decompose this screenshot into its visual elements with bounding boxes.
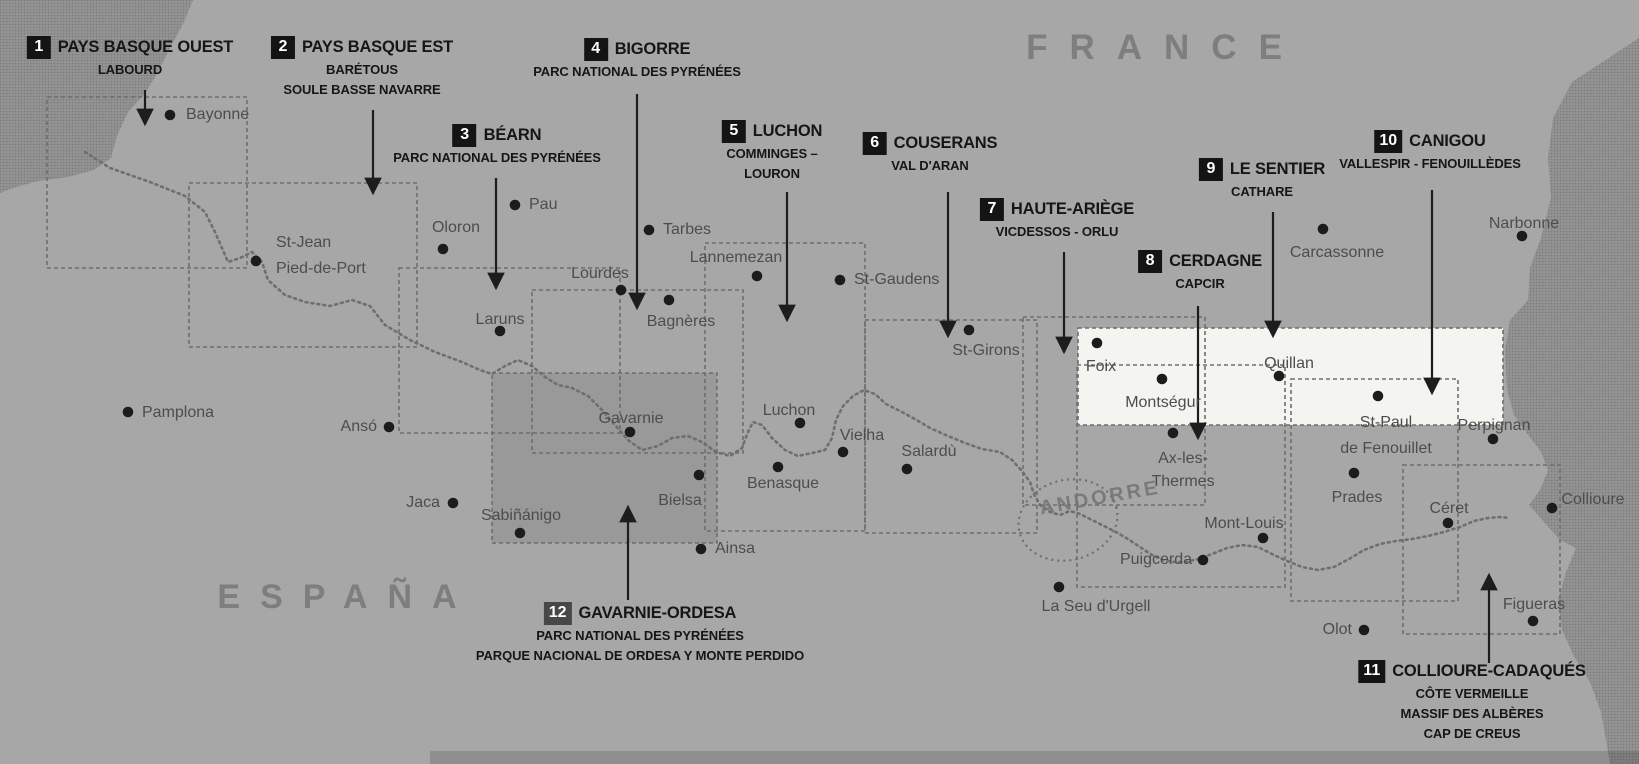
city-dot-jaca <box>448 498 459 509</box>
region-label-11: 11COLLIOURE-CADAQUÉSCÔTE VERMEILLEMASSIF… <box>1358 660 1585 743</box>
city-label-line: de Fenouillet <box>1340 436 1432 462</box>
city-label-line: Sabiñánigo <box>481 505 561 527</box>
city-label-c-ret: Céret <box>1429 498 1468 520</box>
city-label-pamplona: Pamplona <box>142 402 214 424</box>
city-label-line: Vielha <box>840 425 884 447</box>
city-label-line: La Seu d'Urgell <box>1042 596 1151 618</box>
city-dot-pamplona <box>123 407 134 418</box>
region-number-badge: 12 <box>544 602 572 625</box>
city-dot-st-gaudens <box>835 275 846 286</box>
city-dot-foix <box>1092 338 1103 349</box>
city-label-pau: Pau <box>529 194 557 216</box>
city-label-line: Gavarnie <box>599 408 664 430</box>
city-dot-salard- <box>902 464 913 475</box>
city-label-line: Perpignan <box>1458 415 1531 437</box>
city-dot-ainsa <box>696 544 707 555</box>
city-label-la-seu-d-urgell: La Seu d'Urgell <box>1042 596 1151 618</box>
city-label-puigcerda: Puigcerda <box>1120 549 1192 571</box>
region-label-12: 12GAVARNIE-ORDESAPARC NATIONAL DES PYRÉN… <box>476 602 804 665</box>
region-title: PAYS BASQUE OUEST <box>58 38 233 57</box>
city-label-line: Quillan <box>1264 353 1314 375</box>
region-number-badge: 6 <box>863 132 887 155</box>
region-subtitle: SOULE BASSE NAVARRE <box>271 81 453 99</box>
city-label-ax-les-thermes: Ax-les-Thermes <box>1151 447 1214 493</box>
city-label-line: St-Gaudens <box>854 269 939 291</box>
city-label-line: Prades <box>1332 487 1383 509</box>
city-dot-collioure <box>1547 503 1558 514</box>
city-dot-bielsa <box>694 470 705 481</box>
city-dot-prades <box>1349 468 1360 479</box>
city-dot-puigcerda <box>1198 555 1209 566</box>
city-label-line: Ansó <box>341 416 377 438</box>
region-subtitle: VALLESPIR - FENOUILLÈDES <box>1339 155 1521 173</box>
city-label-olot: Olot <box>1323 619 1352 641</box>
city-label-line: Bagnères <box>647 311 716 333</box>
city-label-tarbes: Tarbes <box>663 219 711 241</box>
city-label-line: Ax-les- <box>1151 447 1214 470</box>
city-label-carcassonne: Carcassonne <box>1290 242 1384 264</box>
city-label-st-jean-pied-de-port: St-JeanPied-de-Port <box>276 230 366 282</box>
city-label-line: Salardù <box>901 441 956 463</box>
city-label-line: Tarbes <box>663 219 711 241</box>
region-number-badge: 10 <box>1374 130 1402 153</box>
city-label-line: Pau <box>529 194 557 216</box>
bottom-edge-shadow <box>430 751 1639 764</box>
region-title: COUSERANS <box>894 134 998 153</box>
city-dot-pau <box>510 200 521 211</box>
city-dot-benasque <box>773 462 784 473</box>
region-label-2: 2PAYS BASQUE ESTBARÉTOUSSOULE BASSE NAVA… <box>271 36 453 99</box>
region-title: CERDAGNE <box>1169 252 1262 271</box>
city-label-figueras: Figueras <box>1503 594 1565 616</box>
city-label-line: Oloron <box>432 217 480 239</box>
region-label-1: 1PAYS BASQUE OUESTLABOURD <box>27 36 233 79</box>
region-subtitle: PARQUE NACIONAL DE ORDESA Y MONTE PERDID… <box>476 647 804 665</box>
city-label-line: Bayonne <box>186 104 249 126</box>
region-label-3: 3BÉARNPARC NATIONAL DES PYRÉNÉES <box>393 124 601 167</box>
city-label-jaca: Jaca <box>406 492 440 514</box>
city-label-line: Lannemezan <box>690 247 783 269</box>
city-label-line: Foix <box>1086 356 1116 378</box>
city-dot-st-paul-de-fenouillet <box>1373 391 1384 402</box>
region-subtitle: PARC NATIONAL DES PYRÉNÉES <box>476 627 804 645</box>
city-label-ans-: Ansó <box>341 416 377 438</box>
region-title: HAUTE-ARIÈGE <box>1011 200 1134 219</box>
city-label-line: Jaca <box>406 492 440 514</box>
city-label-line: Laruns <box>476 309 525 331</box>
city-label-line: St-Jean <box>276 230 366 256</box>
region-title: COLLIOURE-CADAQUÉS <box>1392 662 1585 681</box>
region-subtitle: LABOURD <box>27 61 233 79</box>
city-label-perpignan: Perpignan <box>1458 415 1531 437</box>
city-label-sabi-nigo: Sabiñánigo <box>481 505 561 527</box>
region-subtitle: VICDESSOS - ORLU <box>980 223 1134 241</box>
city-dot-monts-gur <box>1157 374 1168 385</box>
region-title: BÉARN <box>484 126 542 145</box>
region-subtitle: MASSIF DES ALBÈRES <box>1358 705 1585 723</box>
region-subtitle: BARÉTOUS <box>271 61 453 79</box>
city-label-luchon: Luchon <box>763 400 816 422</box>
city-label-st-girons: St-Girons <box>952 340 1020 362</box>
region-number-badge: 11 <box>1358 660 1385 683</box>
city-label-bayonne: Bayonne <box>186 104 249 126</box>
region-title: PAYS BASQUE EST <box>302 38 453 57</box>
region-title: LUCHON <box>753 122 822 141</box>
city-label-line: Bielsa <box>658 490 702 512</box>
city-dot-oloron <box>438 244 449 255</box>
city-dot-vielha <box>838 447 849 458</box>
city-label-collioure: Collioure <box>1561 489 1624 511</box>
city-label-oloron: Oloron <box>432 217 480 239</box>
region-number-badge: 1 <box>27 36 51 59</box>
city-dot-tarbes <box>644 225 655 236</box>
pyrenees-map-index: FRANCE ESPAÑA ANDORRE 1PAYS BASQUE OUEST… <box>0 0 1639 764</box>
region-label-10: 10CANIGOUVALLESPIR - FENOUILLÈDES <box>1339 130 1521 173</box>
city-dot-ans- <box>384 422 395 433</box>
city-dot-la-seu-d-urgell <box>1054 582 1065 593</box>
city-dot-st-girons <box>964 325 975 336</box>
city-label-line: Ainsa <box>715 538 755 560</box>
region-label-9: 9LE SENTIERCATHARE <box>1199 158 1325 201</box>
city-label-line: Lourdes <box>571 263 629 285</box>
city-dot-bagn-res <box>664 295 675 306</box>
city-label-line: St-Girons <box>952 340 1020 362</box>
region-title: CANIGOU <box>1409 132 1486 151</box>
city-label-st-paul-de-fenouillet: St-Paulde Fenouillet <box>1340 410 1432 462</box>
city-dot-bayonne <box>165 110 176 121</box>
city-label-line: Puigcerda <box>1120 549 1192 571</box>
city-label-ainsa: Ainsa <box>715 538 755 560</box>
sea-shape <box>1505 38 1639 764</box>
region-subtitle: PARC NATIONAL DES PYRÉNÉES <box>533 63 741 81</box>
city-label-line: Montségur <box>1125 392 1201 414</box>
city-label-line: Figueras <box>1503 594 1565 616</box>
region-label-7: 7HAUTE-ARIÈGEVICDESSOS - ORLU <box>980 198 1134 241</box>
region-number-badge: 7 <box>980 198 1004 221</box>
city-label-bielsa: Bielsa <box>658 490 702 512</box>
city-label-st-gaudens: St-Gaudens <box>854 269 939 291</box>
city-label-line: Pied-de-Port <box>276 256 366 282</box>
region-title: LE SENTIER <box>1230 160 1325 179</box>
city-label-benasque: Benasque <box>747 473 819 495</box>
city-label-bagn-res: Bagnères <box>647 311 716 333</box>
region-title: BIGORRE <box>615 40 691 59</box>
city-label-salard-: Salardù <box>901 441 956 463</box>
city-label-monts-gur: Montségur <box>1125 392 1201 414</box>
city-label-line: Céret <box>1429 498 1468 520</box>
city-label-prades: Prades <box>1332 487 1383 509</box>
city-label-lannemezan: Lannemezan <box>690 247 783 269</box>
region-subtitle: CATHARE <box>1199 183 1325 201</box>
city-dot-st-jean-pied-de-port <box>251 256 262 267</box>
region-subtitle: CÔTE VERMEILLE <box>1358 685 1585 703</box>
city-label-lourdes: Lourdes <box>571 263 629 285</box>
city-label-narbonne: Narbonne <box>1489 213 1559 235</box>
city-label-line: Luchon <box>763 400 816 422</box>
city-dot-figueras <box>1528 616 1539 627</box>
region-subtitle: COMMINGES – <box>722 145 822 163</box>
country-label-france: FRANCE <box>1026 28 1304 68</box>
city-label-gavarnie: Gavarnie <box>599 408 664 430</box>
city-dot-olot <box>1359 625 1370 636</box>
region-number-badge: 4 <box>584 38 608 61</box>
region-subtitle: PARC NATIONAL DES PYRÉNÉES <box>393 149 601 167</box>
city-label-foix: Foix <box>1086 356 1116 378</box>
region-label-6: 6COUSERANSVAL D'ARAN <box>863 132 998 175</box>
region-label-4: 4BIGORREPARC NATIONAL DES PYRÉNÉES <box>533 38 741 81</box>
city-label-line: Carcassonne <box>1290 242 1384 264</box>
city-label-line: Olot <box>1323 619 1352 641</box>
city-label-line: Mont-Louis <box>1204 513 1283 535</box>
region-number-badge: 5 <box>722 120 746 143</box>
region-number-badge: 8 <box>1138 250 1162 273</box>
city-dot-lourdes <box>616 285 627 296</box>
andorra-border-loop <box>1009 468 1126 571</box>
city-dot-lannemezan <box>752 271 763 282</box>
region-number-badge: 9 <box>1199 158 1223 181</box>
city-label-vielha: Vielha <box>840 425 884 447</box>
region-label-5: 5LUCHONCOMMINGES –LOURON <box>722 120 822 183</box>
city-label-mont-louis: Mont-Louis <box>1204 513 1283 535</box>
region-number-badge: 2 <box>271 36 295 59</box>
city-dot-ax-les-thermes <box>1168 428 1179 439</box>
city-label-laruns: Laruns <box>476 309 525 331</box>
region-subtitle: VAL D'ARAN <box>863 157 998 175</box>
region-subtitle: CAPCIR <box>1138 275 1262 293</box>
city-label-line: Narbonne <box>1489 213 1559 235</box>
city-label-line: Thermes <box>1151 470 1214 493</box>
city-label-quillan: Quillan <box>1264 353 1314 375</box>
city-label-line: St-Paul <box>1340 410 1432 436</box>
region-number-badge: 3 <box>453 124 477 147</box>
city-label-line: Collioure <box>1561 489 1624 511</box>
city-label-line: Pamplona <box>142 402 214 424</box>
country-label-espana: ESPAÑA <box>217 578 476 617</box>
city-dot-carcassonne <box>1318 224 1329 235</box>
region-subtitle: LOURON <box>722 165 822 183</box>
city-dot-sabi-nigo <box>515 528 526 539</box>
region-label-8: 8CERDAGNECAPCIR <box>1138 250 1262 293</box>
region-title: GAVARNIE-ORDESA <box>579 604 737 623</box>
city-label-line: Benasque <box>747 473 819 495</box>
region-subtitle: CAP DE CREUS <box>1358 725 1585 743</box>
